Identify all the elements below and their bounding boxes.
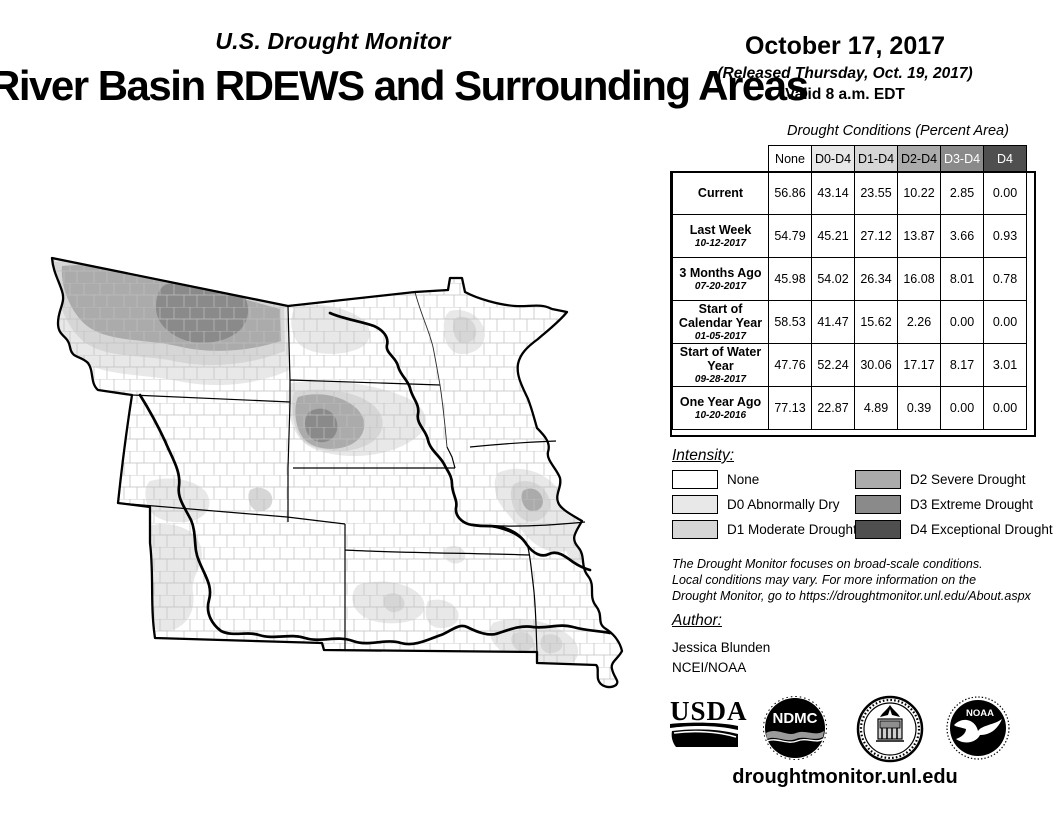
cell: 17.17: [898, 344, 941, 387]
col-header-d3-d4: D3-D4: [941, 146, 984, 172]
disclaimer: The Drought Monitor focuses on broad-sca…: [672, 556, 1031, 604]
table-row-current: Current 56.86 43.14 23.55 10.22 2.85 0.0…: [673, 172, 1027, 215]
row-label: Start of Calendar Year01-05-2017: [673, 301, 769, 344]
legend-item-d4: D4 Exceptional Drought: [855, 520, 1053, 538]
ndmc-logo: NDMC: [763, 695, 827, 766]
map-date: October 17, 2017: [690, 32, 1000, 61]
col-header-d4: D4: [984, 146, 1027, 172]
row-label: 3 Months Ago07-20-2017: [673, 258, 769, 301]
county-grid: [0, 235, 660, 705]
usda-logo: USDA: [670, 701, 738, 752]
cell: 0.00: [984, 387, 1027, 430]
cell: 4.89: [855, 387, 898, 430]
row-label: Current: [673, 172, 769, 215]
row-label: Last Week10-12-2017: [673, 215, 769, 258]
cell: 15.62: [855, 301, 898, 344]
legend-item-d2: D2 Severe Drought: [855, 470, 1053, 488]
table-row-one-year-ago: One Year Ago10-20-2016 77.13 22.87 4.89 …: [673, 387, 1027, 430]
author-org: NCEI/NOAA: [672, 660, 746, 675]
cell: 56.86: [769, 172, 812, 215]
row-label: Start of Water Year09-28-2017: [673, 344, 769, 387]
d2-swatch: [855, 470, 901, 489]
drought-map-svg: [0, 235, 660, 705]
cell: 23.55: [855, 172, 898, 215]
d4-swatch: [855, 520, 901, 539]
cell: 8.01: [941, 258, 984, 301]
d0-swatch: [672, 495, 718, 514]
col-header-none: None: [769, 146, 812, 172]
monitor-label: U.S. Drought Monitor: [178, 28, 488, 55]
cell: 22.87: [812, 387, 855, 430]
disclaimer-line: The Drought Monitor focuses on broad-sca…: [672, 556, 1031, 572]
col-header-d2-d4: D2-D4: [898, 146, 941, 172]
commerce-seal-svg: [856, 695, 924, 763]
table-row-start-water-year: Start of Water Year09-28-2017 47.76 52.2…: [673, 344, 1027, 387]
legend-item-d3: D3 Extreme Drought: [855, 495, 1053, 513]
cell: 54.79: [769, 215, 812, 258]
cell: 45.98: [769, 258, 812, 301]
page-title: River Basin RDEWS and Surrounding Areas: [0, 62, 807, 110]
table-header-row: None D0-D4 D1-D4 D2-D4 D3-D4 D4: [673, 146, 1027, 172]
cell: 77.13: [769, 387, 812, 430]
ndmc-logo-svg: NDMC: [763, 695, 827, 761]
table-corner-cell: [673, 146, 769, 172]
legend-item-none: None: [672, 470, 857, 488]
cell: 43.14: [812, 172, 855, 215]
commerce-seal: [856, 695, 924, 768]
drought-conditions-table: None D0-D4 D1-D4 D2-D4 D3-D4 D4 Current …: [672, 145, 1027, 430]
cell: 27.12: [855, 215, 898, 258]
cell: 0.39: [898, 387, 941, 430]
cell: 2.26: [898, 301, 941, 344]
cell: 0.00: [984, 172, 1027, 215]
table-row-3-months-ago: 3 Months Ago07-20-2017 45.98 54.02 26.34…: [673, 258, 1027, 301]
cell: 16.08: [898, 258, 941, 301]
drought-monitor-report: { "header": { "monitor_label": "U.S. Dro…: [0, 0, 1056, 816]
cell: 0.00: [941, 387, 984, 430]
disclaimer-line: Drought Monitor, go to https://droughtmo…: [672, 588, 1031, 604]
cell: 26.34: [855, 258, 898, 301]
cell: 8.17: [941, 344, 984, 387]
cell: 3.66: [941, 215, 984, 258]
cell: 2.85: [941, 172, 984, 215]
agency-logos: USDA NDMC: [668, 695, 1018, 765]
disclaimer-line: Local conditions may vary. For more info…: [672, 572, 1031, 588]
cell: 45.21: [812, 215, 855, 258]
cell: 58.53: [769, 301, 812, 344]
cell: 52.24: [812, 344, 855, 387]
svg-text:NOAA: NOAA: [966, 708, 994, 719]
cell: 41.47: [812, 301, 855, 344]
table-row-last-week: Last Week10-12-2017 54.79 45.21 27.12 13…: [673, 215, 1027, 258]
noaa-logo-svg: NOAA: [946, 695, 1010, 761]
d3-swatch: [855, 495, 901, 514]
cell: 10.22: [898, 172, 941, 215]
usda-swoosh: [670, 721, 738, 747]
col-header-d1-d4: D1-D4: [855, 146, 898, 172]
cell: 0.00: [984, 301, 1027, 344]
cell: 54.02: [812, 258, 855, 301]
legend-item-d1: D1 Moderate Drought: [672, 520, 857, 538]
cell: 0.78: [984, 258, 1027, 301]
site-url: droughtmonitor.unl.edu: [690, 766, 1000, 789]
cell: 0.00: [941, 301, 984, 344]
cell: 13.87: [898, 215, 941, 258]
legend-item-d0: D0 Abnormally Dry: [672, 495, 857, 513]
cell: 30.06: [855, 344, 898, 387]
cell: 3.01: [984, 344, 1027, 387]
cell: 47.76: [769, 344, 812, 387]
table-row-start-calendar-year: Start of Calendar Year01-05-2017 58.53 4…: [673, 301, 1027, 344]
drought-map: [0, 235, 660, 705]
svg-text:NDMC: NDMC: [773, 710, 818, 727]
row-label: One Year Ago10-20-2016: [673, 387, 769, 430]
noaa-logo: NOAA: [946, 695, 1010, 766]
author-title: Author:: [672, 612, 722, 630]
table-title: Drought Conditions (Percent Area): [740, 123, 1056, 139]
legend-title: Intensity:: [672, 447, 734, 465]
cell: 0.93: [984, 215, 1027, 258]
author-name: Jessica Blunden: [672, 640, 770, 655]
d1-swatch: [672, 520, 718, 539]
none-swatch: [672, 470, 718, 489]
col-header-d0-d4: D0-D4: [812, 146, 855, 172]
